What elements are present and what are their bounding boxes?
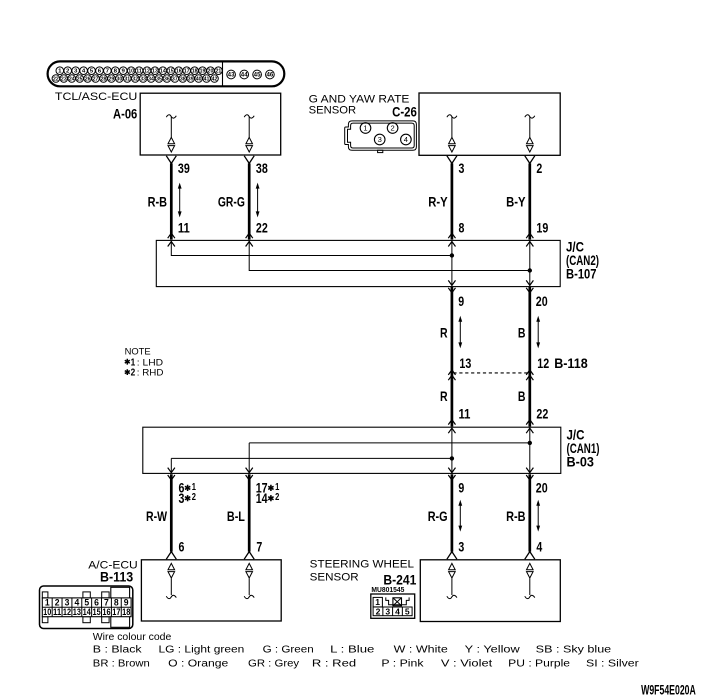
svg-text:W : White: W : White: [394, 645, 449, 656]
svg-text:14: 14: [160, 69, 166, 75]
svg-text:P : Pink: P : Pink: [381, 658, 424, 669]
svg-text:R-B: R-B: [506, 508, 525, 524]
svg-text:3: 3: [74, 69, 78, 75]
svg-text:7: 7: [256, 538, 262, 554]
svg-text:13: 13: [459, 355, 471, 371]
svg-text:20: 20: [208, 69, 214, 75]
svg-text:18: 18: [122, 607, 130, 617]
svg-text:R: R: [440, 388, 448, 404]
svg-text:12: 12: [144, 69, 150, 75]
svg-text:V : Violet: V : Violet: [441, 658, 493, 669]
svg-text:32: 32: [132, 76, 138, 82]
svg-text:20: 20: [536, 293, 548, 309]
svg-text:14: 14: [256, 490, 268, 506]
svg-text:2: 2: [66, 69, 70, 75]
svg-text:17: 17: [184, 69, 190, 75]
svg-text:4: 4: [404, 135, 408, 144]
svg-text:19: 19: [200, 69, 206, 75]
svg-text:R-Y: R-Y: [428, 194, 448, 210]
svg-text:4: 4: [82, 69, 86, 75]
svg-text:9: 9: [458, 293, 464, 309]
svg-text:26: 26: [85, 76, 91, 82]
svg-text:38: 38: [180, 76, 186, 82]
svg-text:Wire colour code: Wire colour code: [93, 632, 172, 643]
svg-text:9: 9: [458, 480, 464, 496]
svg-text:GR-G: GR-G: [218, 194, 245, 210]
svg-text:R: R: [440, 324, 448, 340]
svg-text:5: 5: [405, 606, 410, 616]
svg-text:R-B: R-B: [148, 194, 167, 210]
svg-text:L : Blue: L : Blue: [330, 645, 375, 656]
svg-text:STEERING WHEEL: STEERING WHEEL: [310, 559, 414, 571]
svg-text:39: 39: [188, 76, 194, 82]
svg-text:11: 11: [136, 69, 142, 75]
svg-text:LG : Light green: LG : Light green: [159, 645, 245, 656]
svg-text:12: 12: [537, 355, 549, 371]
svg-text:42: 42: [212, 76, 218, 82]
svg-text:W9F54E020A: W9F54E020A: [641, 682, 696, 698]
svg-text:B-118: B-118: [554, 355, 588, 371]
svg-text:6: 6: [98, 69, 102, 75]
svg-text:33: 33: [140, 76, 146, 82]
svg-text:O : Orange: O : Orange: [168, 658, 229, 669]
svg-text:11: 11: [459, 405, 471, 421]
svg-text:B-113: B-113: [100, 569, 133, 585]
svg-text:15: 15: [168, 69, 174, 75]
svg-text:NOTE: NOTE: [125, 346, 151, 356]
svg-text:2: 2: [192, 492, 197, 503]
svg-text:SENSOR: SENSOR: [310, 572, 359, 584]
svg-text:24: 24: [69, 76, 75, 82]
svg-text:C-26: C-26: [392, 104, 417, 120]
svg-text:4: 4: [395, 606, 400, 616]
svg-text:40: 40: [196, 76, 202, 82]
svg-text:45: 45: [254, 73, 261, 79]
svg-text:B-Y: B-Y: [506, 194, 526, 210]
svg-text:41: 41: [204, 76, 210, 82]
svg-text:19: 19: [536, 219, 548, 235]
svg-text:3: 3: [179, 490, 185, 506]
svg-text:PU : Purple: PU : Purple: [508, 658, 570, 669]
svg-text:TCL/ASC-ECU: TCL/ASC-ECU: [55, 91, 137, 103]
svg-text:R-G: R-G: [428, 508, 448, 524]
svg-text:29: 29: [109, 76, 115, 82]
svg-text:3: 3: [385, 606, 390, 616]
svg-text:10: 10: [43, 607, 51, 617]
svg-text:44: 44: [241, 73, 248, 79]
svg-text:43: 43: [228, 73, 235, 79]
svg-text:Y : Yellow: Y : Yellow: [465, 645, 521, 656]
svg-text:: RHD: : RHD: [137, 368, 164, 378]
svg-text:4: 4: [536, 538, 542, 554]
svg-text:34: 34: [148, 76, 154, 82]
svg-text:SENSOR: SENSOR: [309, 105, 357, 117]
svg-text:2: 2: [536, 160, 542, 176]
svg-text:SB : Sky blue: SB : Sky blue: [536, 645, 612, 656]
svg-text:2: 2: [376, 606, 381, 616]
svg-text:13: 13: [152, 69, 158, 75]
svg-text:SI : Silver: SI : Silver: [586, 658, 640, 669]
svg-text:39: 39: [178, 160, 190, 176]
svg-text:14: 14: [83, 607, 91, 617]
svg-text:11: 11: [178, 219, 190, 235]
svg-text:B-03: B-03: [567, 454, 595, 470]
svg-text:31: 31: [124, 76, 130, 82]
svg-text:GR : Grey: GR : Grey: [248, 658, 299, 669]
svg-text:7: 7: [106, 69, 110, 75]
svg-text:6: 6: [179, 538, 185, 554]
svg-text:46: 46: [267, 73, 274, 79]
svg-text:8: 8: [459, 219, 465, 235]
svg-text:16: 16: [176, 69, 182, 75]
svg-text:17: 17: [112, 607, 120, 617]
svg-text:R : Red: R : Red: [312, 658, 356, 669]
svg-text:37: 37: [172, 76, 178, 82]
svg-text:G : Green: G : Green: [263, 645, 314, 656]
svg-text:8: 8: [114, 69, 118, 75]
svg-text:1: 1: [363, 124, 367, 133]
svg-text:3: 3: [458, 538, 464, 554]
svg-text:: LHD: : LHD: [137, 357, 164, 367]
svg-text:13: 13: [73, 607, 81, 617]
svg-text:21: 21: [216, 69, 222, 75]
svg-text:R-W: R-W: [146, 508, 168, 524]
svg-text:1: 1: [58, 69, 62, 75]
svg-text:10: 10: [128, 69, 134, 75]
svg-text:28: 28: [101, 76, 107, 82]
svg-text:5: 5: [90, 69, 94, 75]
svg-text:38: 38: [256, 160, 268, 176]
svg-text:9: 9: [122, 69, 126, 75]
svg-text:3: 3: [459, 160, 465, 176]
svg-text:B: B: [518, 324, 526, 340]
svg-text:22: 22: [53, 76, 59, 82]
svg-text:B-107: B-107: [566, 266, 597, 282]
svg-text:3: 3: [378, 135, 382, 144]
svg-text:16: 16: [102, 607, 110, 617]
svg-text:2: 2: [390, 124, 394, 133]
svg-text:12: 12: [63, 607, 71, 617]
svg-text:BR : Brown: BR : Brown: [93, 658, 150, 669]
svg-text:35: 35: [156, 76, 162, 82]
svg-text:25: 25: [77, 76, 83, 82]
svg-text:B-L: B-L: [227, 508, 245, 524]
svg-text:11: 11: [53, 607, 61, 617]
svg-text:2: 2: [275, 492, 280, 503]
svg-text:2: 2: [131, 367, 136, 379]
svg-text:27: 27: [93, 76, 99, 82]
svg-text:22: 22: [256, 219, 268, 235]
svg-text:30: 30: [116, 76, 122, 82]
svg-text:B: B: [518, 388, 526, 404]
svg-text:18: 18: [192, 69, 198, 75]
svg-text:23: 23: [61, 76, 67, 82]
svg-text:MU801545: MU801545: [371, 585, 404, 594]
svg-text:B : Black: B : Black: [93, 645, 143, 656]
svg-text:20: 20: [536, 480, 548, 496]
svg-text:A-06: A-06: [113, 106, 137, 122]
svg-text:22: 22: [536, 405, 548, 421]
svg-text:15: 15: [92, 607, 100, 617]
svg-text:36: 36: [164, 76, 170, 82]
